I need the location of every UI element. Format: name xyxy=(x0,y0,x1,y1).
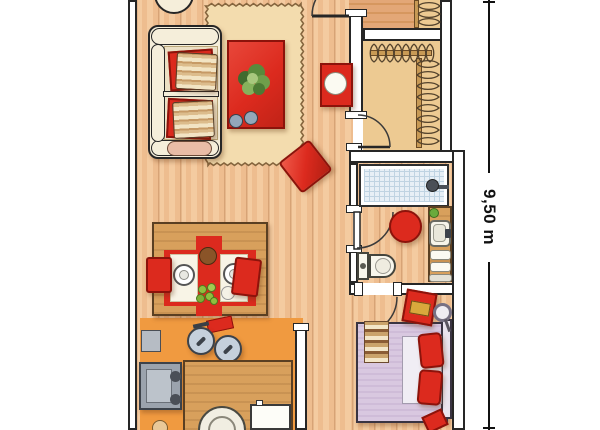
dimension-tick-bottom xyxy=(483,427,495,429)
plant-leaf xyxy=(247,73,258,84)
potted-plant xyxy=(238,64,272,98)
grape xyxy=(196,294,205,303)
soap-dish xyxy=(429,208,439,218)
sofa-cushion xyxy=(175,52,218,91)
plant-leaf xyxy=(253,83,265,95)
dimension-line-upper xyxy=(488,0,490,173)
dinner-plate-center xyxy=(179,270,189,280)
coaster xyxy=(229,114,243,128)
faucet xyxy=(445,229,451,238)
sofa-roll-pillow xyxy=(167,141,212,156)
stove-knob xyxy=(170,394,181,405)
pillow xyxy=(417,369,444,406)
jar xyxy=(152,420,168,430)
serving-bowl xyxy=(199,247,217,265)
towel xyxy=(430,262,451,272)
closet-hangers-right xyxy=(417,61,439,145)
headboard xyxy=(441,319,452,419)
pillow xyxy=(417,332,445,369)
toilet-bowl-inner xyxy=(375,258,391,274)
shower-head xyxy=(426,179,439,192)
dining-chair xyxy=(231,256,262,297)
wardrobe-hangers xyxy=(418,3,440,26)
fruit-bowl xyxy=(196,283,220,307)
dimension-tick-top xyxy=(483,1,495,3)
stove-knob xyxy=(170,371,181,382)
closet-hangers-top xyxy=(370,44,434,62)
dimension-label: 9,50 m xyxy=(479,189,499,245)
refrigerator-handle xyxy=(256,400,263,406)
sofa-cushion xyxy=(172,100,215,139)
sofa-seat-divider xyxy=(163,91,219,97)
closet-door-arc xyxy=(358,115,390,147)
grape xyxy=(210,297,218,305)
sofa-arm-top xyxy=(151,28,219,45)
towel xyxy=(430,250,451,260)
stove xyxy=(139,362,182,410)
toilet-flush-button xyxy=(360,263,366,269)
bed-throw xyxy=(364,321,389,363)
towel xyxy=(429,274,452,282)
dimension-line-lower xyxy=(488,262,490,430)
floor-plan-canvas: 9,50 m xyxy=(0,0,600,430)
refrigerator xyxy=(250,404,291,430)
plan-linework xyxy=(0,0,600,430)
accent-table-bowl xyxy=(324,72,347,95)
shower xyxy=(359,164,449,207)
stove-top xyxy=(146,369,172,403)
bathroom-door-leaf xyxy=(354,212,360,249)
entry-door-arc xyxy=(312,0,349,16)
bath-rug xyxy=(389,210,422,243)
hand-mirror xyxy=(433,303,452,322)
trash-bin xyxy=(141,330,161,352)
bathroom-door-arc xyxy=(357,212,393,248)
coaster xyxy=(244,111,258,125)
dining-chair xyxy=(146,257,172,293)
grape xyxy=(207,283,216,292)
